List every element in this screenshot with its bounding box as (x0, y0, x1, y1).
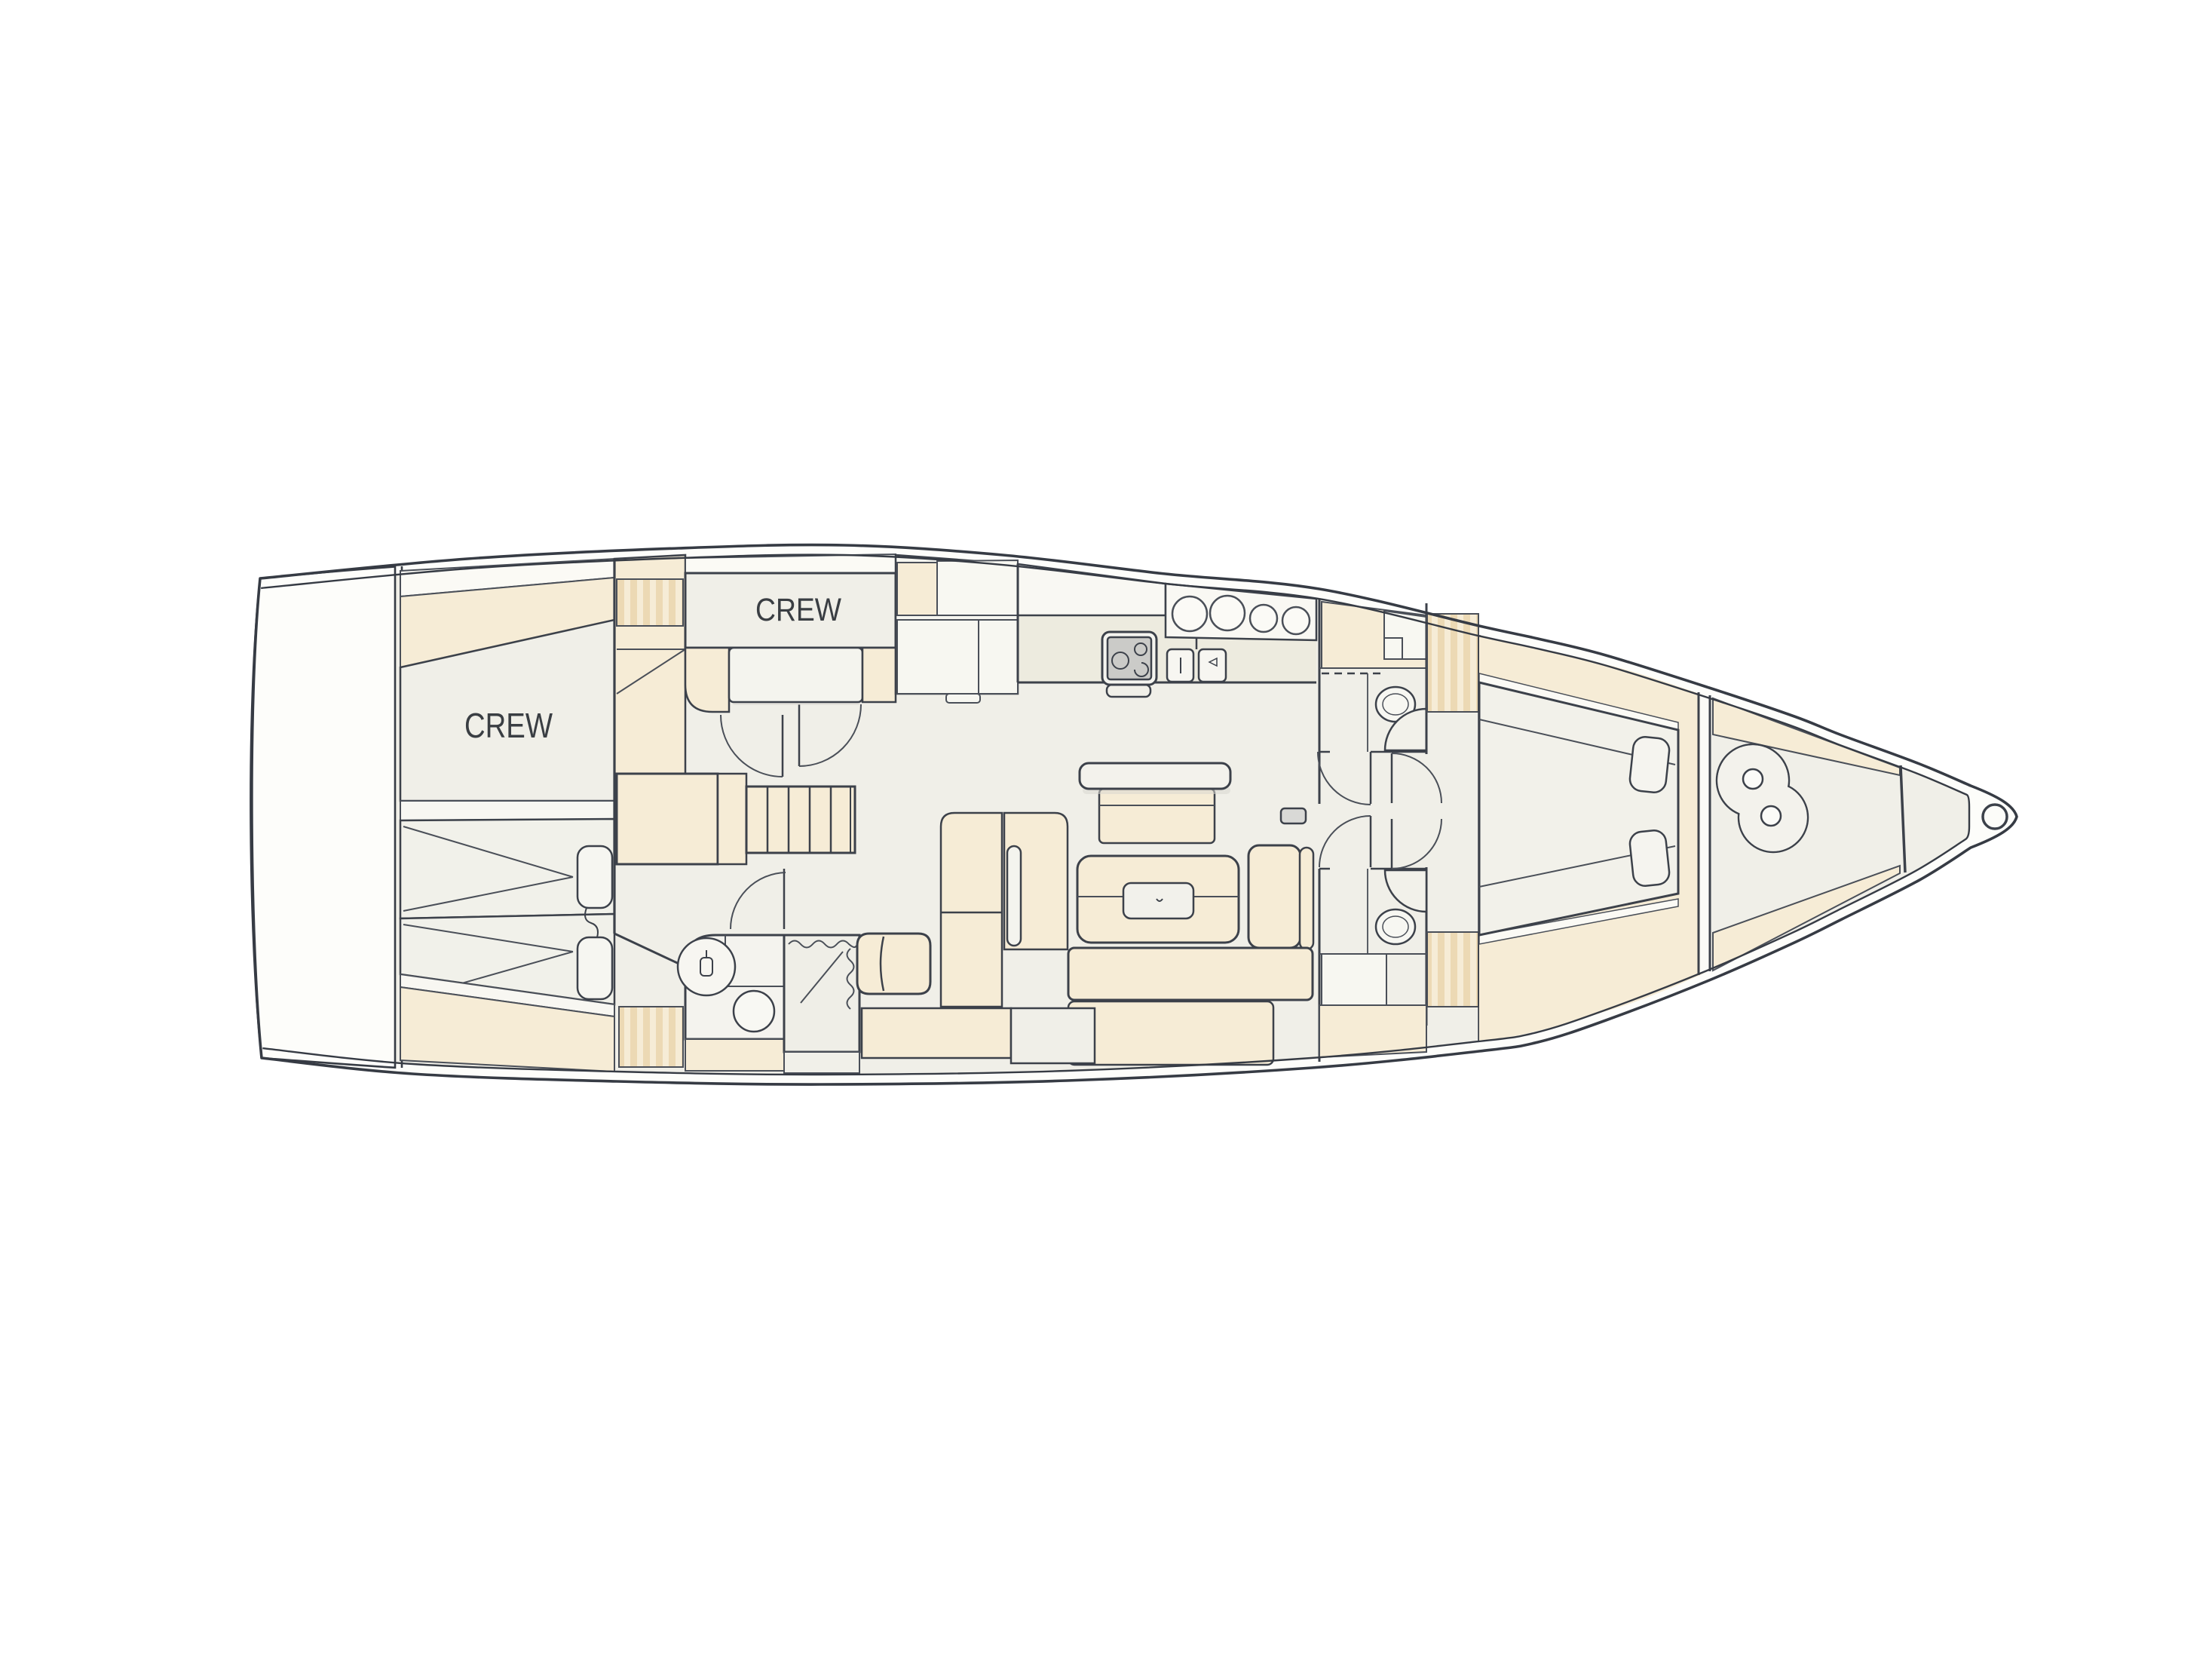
svg-text:CREW: CREW (464, 706, 553, 745)
svg-text:CREW: CREW (755, 593, 841, 628)
